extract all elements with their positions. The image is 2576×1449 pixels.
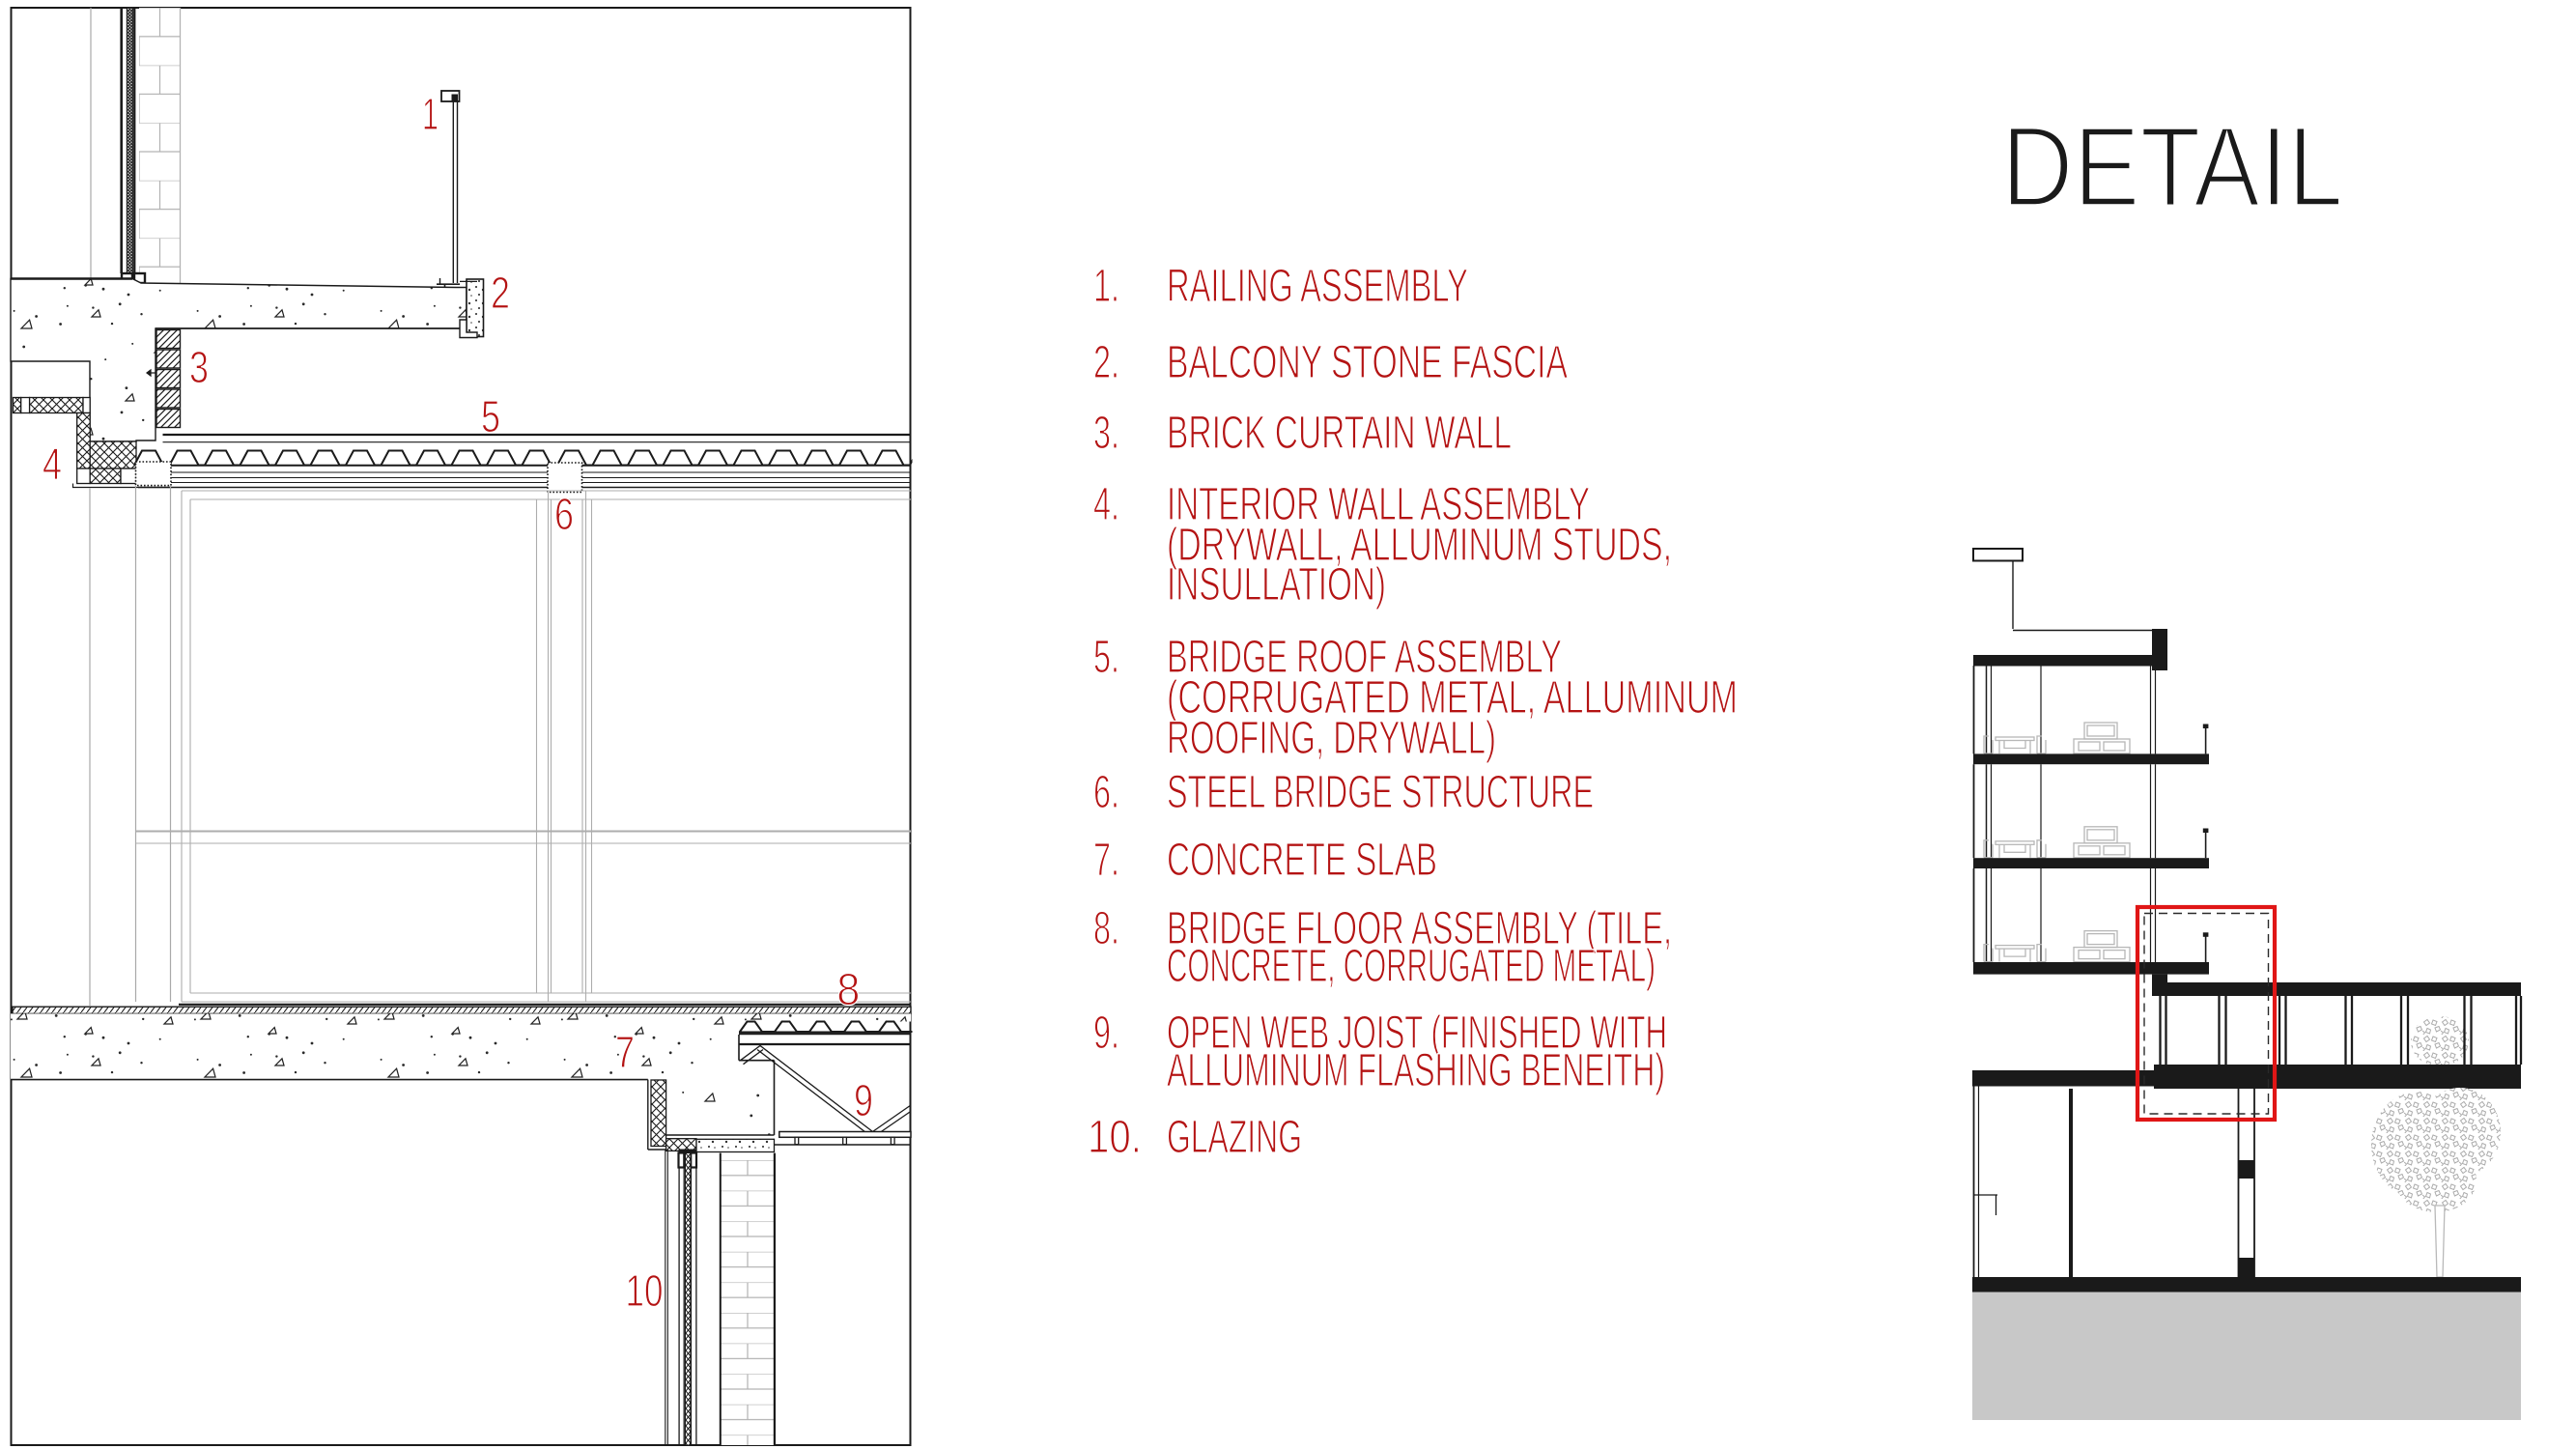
svg-text:9: 9 [854, 1075, 873, 1125]
svg-text:2: 2 [491, 268, 510, 318]
svg-text:10: 10 [626, 1265, 664, 1316]
svg-text:3: 3 [189, 342, 209, 392]
svg-text:CONCRETE, CORRUGATED METAL): CONCRETE, CORRUGATED METAL) [1167, 941, 1656, 992]
svg-text:8: 8 [836, 964, 860, 1014]
svg-text:6.: 6. [1093, 767, 1119, 818]
svg-text:CONCRETE SLAB: CONCRETE SLAB [1167, 835, 1437, 886]
svg-text:6: 6 [554, 489, 574, 539]
svg-text:4.: 4. [1093, 479, 1119, 530]
svg-text:7: 7 [615, 1027, 635, 1077]
svg-text:8.: 8. [1093, 903, 1119, 954]
svg-text:2.: 2. [1093, 337, 1119, 388]
svg-text:10.: 10. [1088, 1112, 1142, 1163]
svg-text:BALCONY STONE FASCIA: BALCONY STONE FASCIA [1167, 337, 1568, 388]
svg-text:7.: 7. [1093, 835, 1119, 886]
svg-text:STEEL BRIDGE STRUCTURE: STEEL BRIDGE STRUCTURE [1167, 767, 1594, 818]
svg-text:3.: 3. [1093, 408, 1119, 459]
svg-text:5.: 5. [1093, 632, 1119, 683]
svg-text:9.: 9. [1093, 1008, 1119, 1059]
svg-text:GLAZING: GLAZING [1167, 1112, 1302, 1163]
svg-text:5: 5 [481, 391, 500, 441]
svg-text:4: 4 [42, 439, 62, 489]
svg-text:DETAIL: DETAIL [2001, 103, 2343, 231]
svg-text:ROOFING, DRYWALL): ROOFING, DRYWALL) [1167, 713, 1496, 764]
svg-text:INSULLATION): INSULLATION) [1167, 559, 1386, 611]
svg-text:RAILING ASSEMBLY: RAILING ASSEMBLY [1167, 261, 1468, 312]
svg-text:1: 1 [422, 89, 439, 139]
svg-text:ALLUMINUM FLASHING BENEITH): ALLUMINUM FLASHING BENEITH) [1167, 1045, 1665, 1096]
svg-text:BRICK CURTAIN WALL: BRICK CURTAIN WALL [1167, 408, 1512, 459]
svg-text:1.: 1. [1093, 261, 1119, 312]
